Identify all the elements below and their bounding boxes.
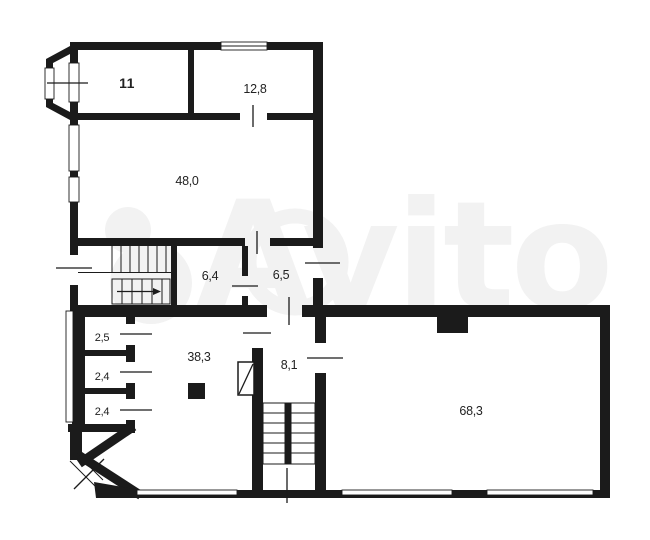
room-label-6-4: 6,4: [202, 269, 219, 283]
room-label-11: 11: [119, 75, 135, 91]
room-label-38-3: 38,3: [187, 350, 210, 364]
room-label-68-3: 68,3: [459, 404, 482, 418]
floor-plan: Avito: [0, 0, 650, 540]
avito-watermark: Avito: [105, 170, 610, 344]
window-bottom-68-3-b: [487, 490, 593, 495]
room-label-6-5: 6,5: [273, 268, 290, 282]
room-label-8-1: 8,1: [281, 358, 298, 372]
window-top-12-8: [221, 42, 267, 50]
window-strip-left-lower: [66, 311, 73, 422]
floor-plan-svg: Avito: [0, 0, 650, 540]
room-label-48-0: 48,0: [175, 174, 198, 188]
window-bottom-38-3: [137, 490, 237, 495]
room-label-2-5: 2,5: [95, 332, 110, 344]
window-left-48-0-a: [69, 125, 79, 171]
room-label-2-4-a: 2,4: [95, 371, 110, 383]
room-label-2-4-b: 2,4: [95, 406, 110, 418]
room-label-12-8: 12,8: [243, 82, 266, 96]
staircase-lower: [263, 403, 315, 464]
watermark-text: Avito: [195, 170, 610, 344]
bay-window: [45, 46, 88, 120]
door-leaf-symbol: [238, 362, 254, 395]
window-left-48-0-b: [69, 177, 79, 202]
window-bottom-68-3-a: [342, 490, 452, 495]
column-symbol: [188, 383, 205, 399]
wall-notch: [437, 317, 468, 333]
